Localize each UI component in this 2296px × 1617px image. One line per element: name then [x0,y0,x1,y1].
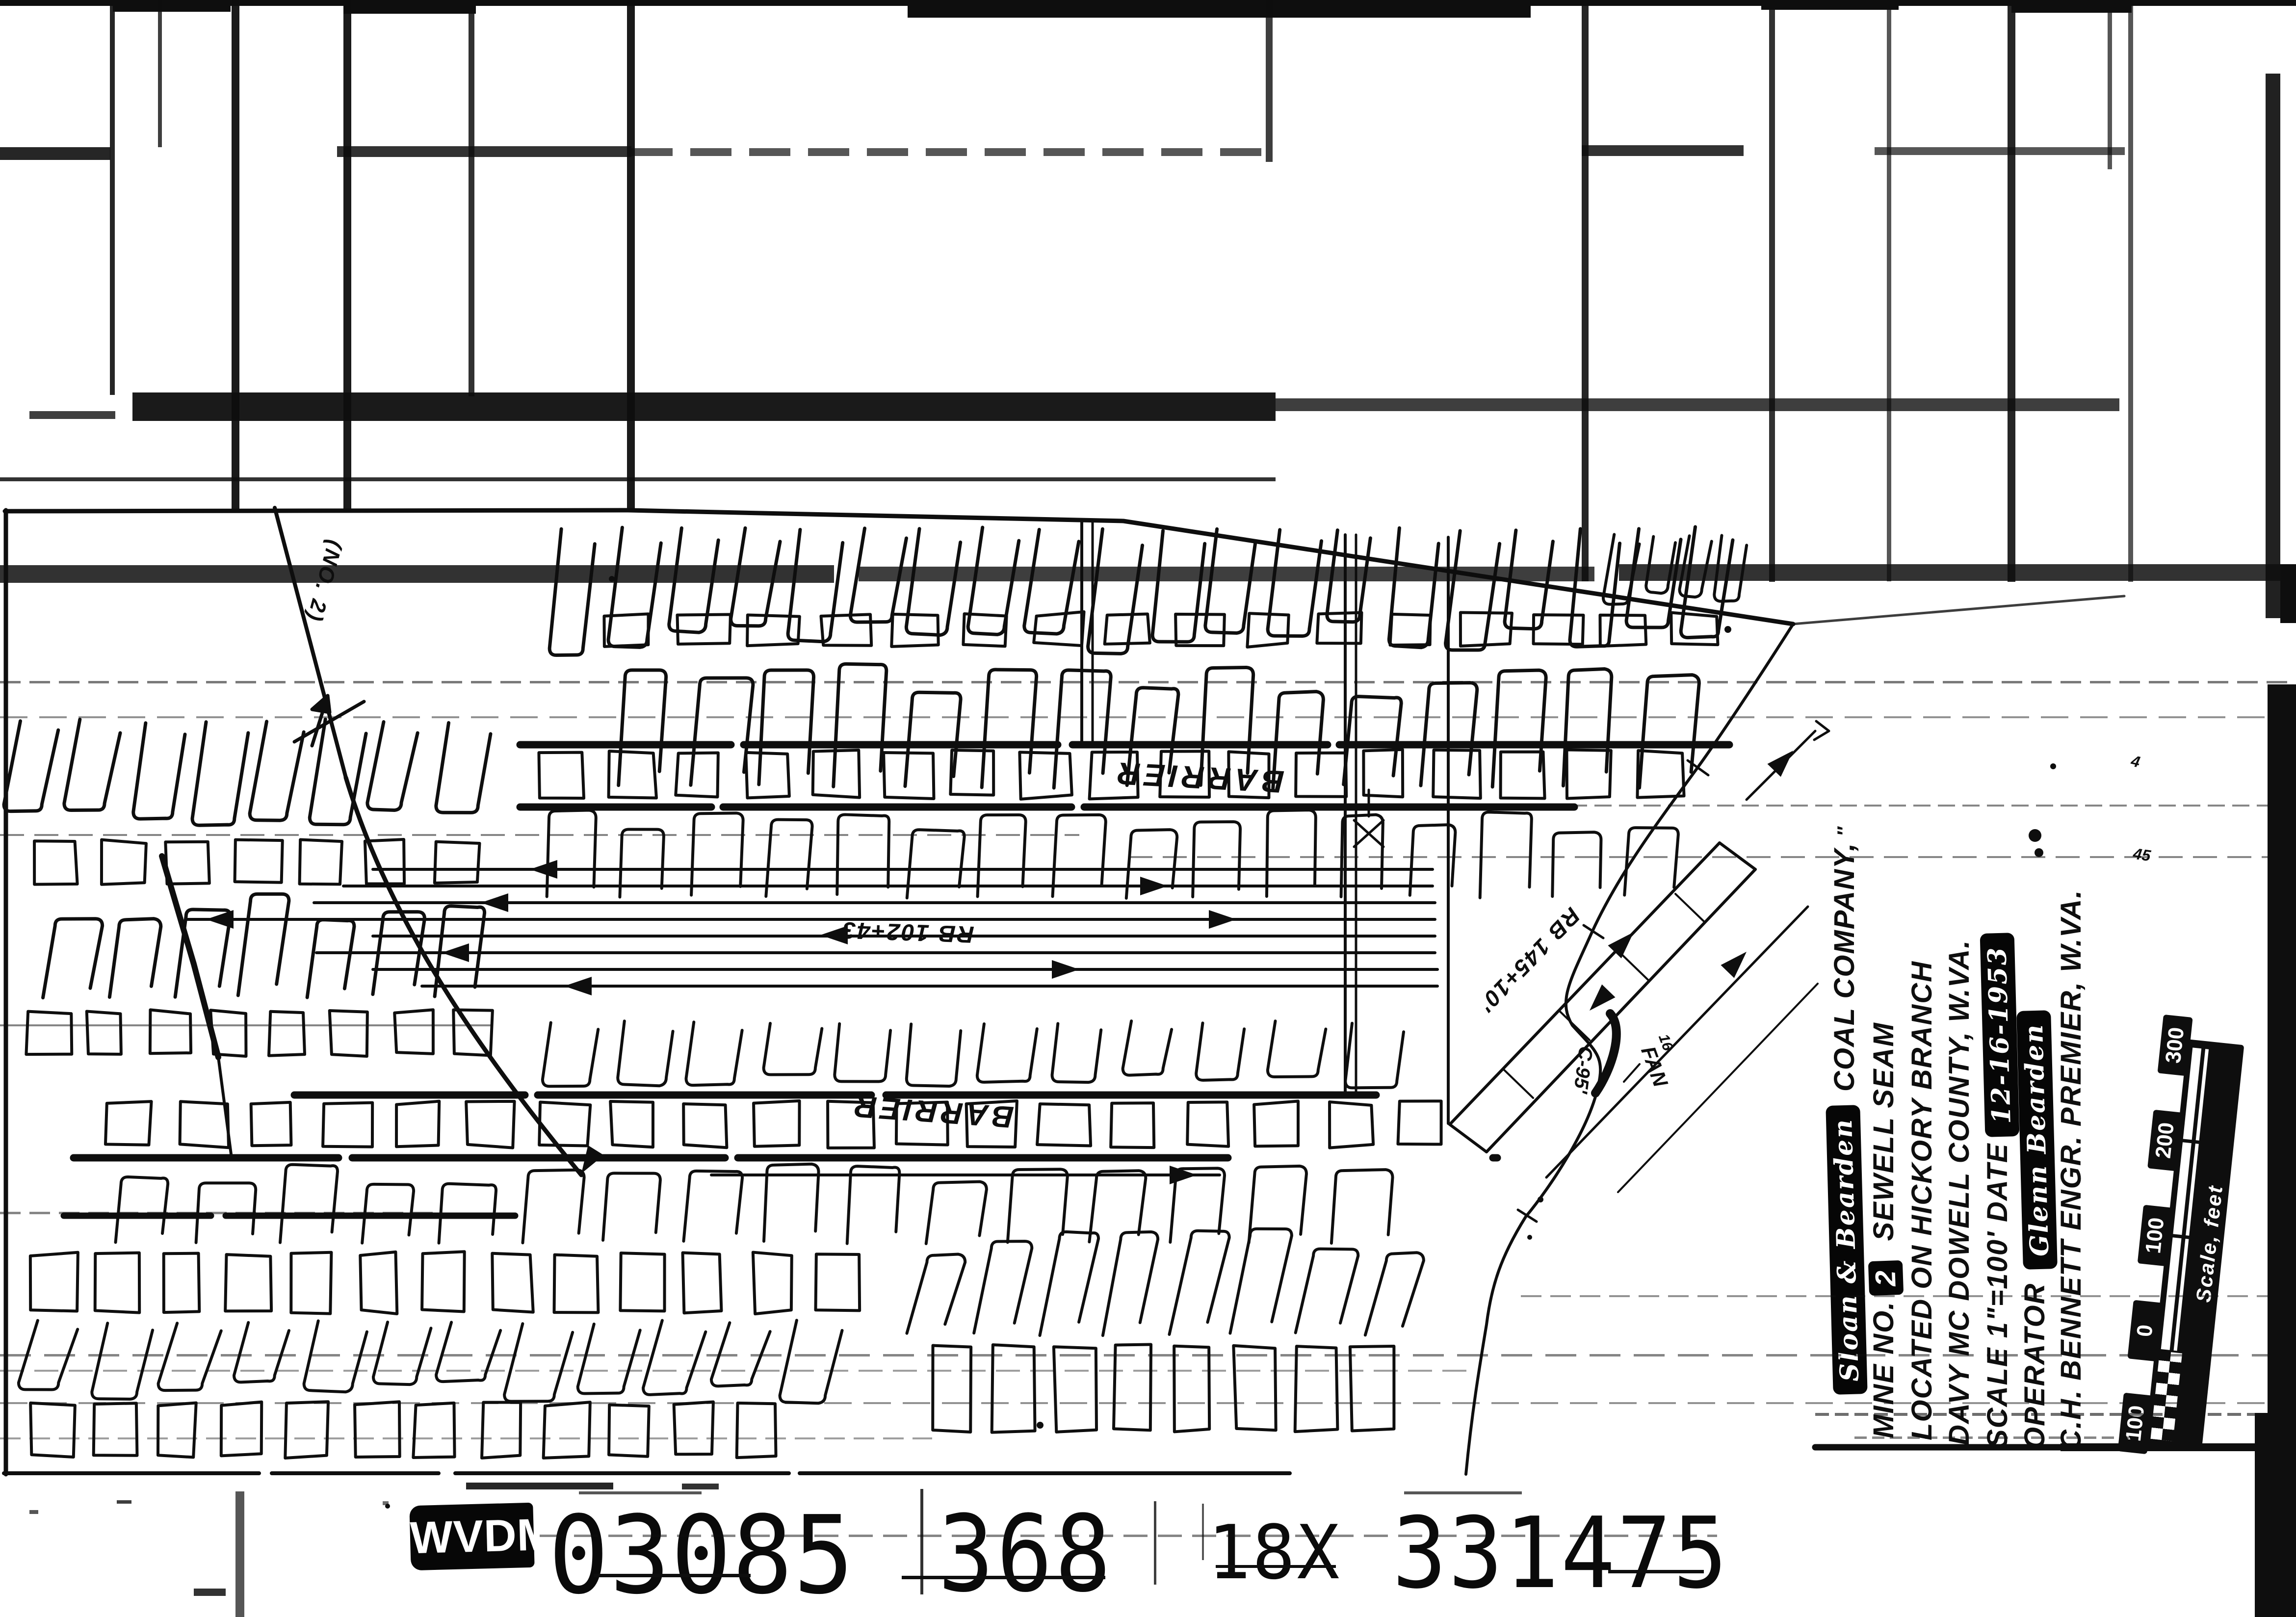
survey-station-label-rb102: RB 102+43' [834,916,974,948]
located-text: LOCATED ON HICKORY BRANCH [1906,961,1938,1440]
title-location-line: LOCATED ON HICKORY BRANCH [1903,961,1942,1440]
date-badge: 12-16-1953 [1980,933,2019,1137]
mine-no-text: MINE NO. [1868,1301,1900,1438]
barrier-lines-lower [64,1095,1501,1216]
owner-name-badge: Sloan & Bearden [1826,1105,1867,1395]
north-arrow-icon [294,696,364,746]
engineer-text: C.H. BENNETT ENGR. PREMIER, W.VA. [2055,889,2087,1450]
title-engineer-line: C.H. BENNETT ENGR. PREMIER, W.VA. [2052,889,2091,1450]
film-id-group: 331475 [1392,1496,1729,1611]
company-text: COAL COMPANY, [1828,842,1860,1092]
title-company-line: Sloan & BeardenCOAL COMPANY,″ [1825,826,1864,1394]
film-id-group: 03085 [548,1492,855,1617]
title-county-line: DAVY MC DOWELL COUNTY, W.VA. [1940,939,1979,1445]
title-mine-line: MINE NO.2SEWELL SEAM [1864,1022,1904,1438]
operator-signature-badge: Glenn Bearden [2016,1010,2058,1269]
title-scale-date-line: SCALE 1"=100' DATE12-16-1953 [1978,934,2017,1448]
title-operator-line: OPERATORGlenn Bearden [2015,1010,2055,1449]
main-entries [186,522,1448,1175]
ink-specks [385,576,2056,1509]
mine-number-badge: 2 [1868,1260,1903,1296]
elevation-mark-45: 45 [2132,845,2152,865]
county-text: DAVY MC DOWELL COUNTY, W.VA. [1943,939,1975,1445]
ditto-mark: ″ [1834,826,1855,836]
film-id-group: 18X [1208,1509,1341,1596]
microfilm-scan: BARRIER BARRIER RB 102+43' RB 145+10' (N… [0,0,2296,1617]
seam-text: SEWELL SEAM [1868,1022,1900,1241]
operator-text: OPERATOR [2019,1283,2051,1449]
film-id-badge: WVDM [409,1503,534,1571]
film-id-group: 368 [938,1492,1114,1616]
scale-date-text: SCALE 1"=100' DATE [1982,1143,2013,1448]
diagonal-entries [1450,731,1818,1192]
